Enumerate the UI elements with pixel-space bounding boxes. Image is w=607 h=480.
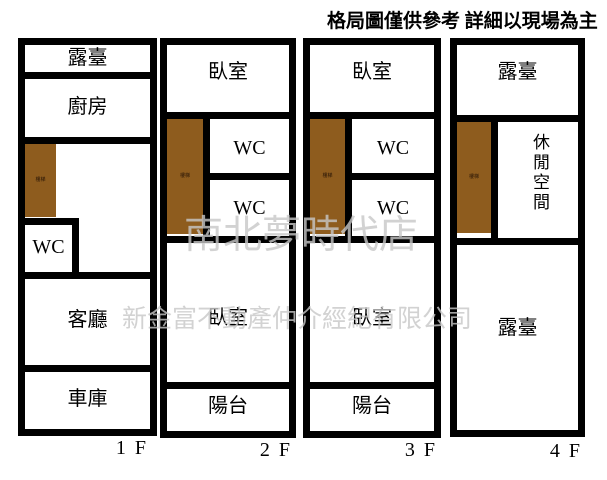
room-label-bedroom-upper: 臥室	[310, 61, 434, 83]
room-label-living: 客廳	[25, 309, 150, 331]
wall	[25, 218, 79, 225]
floor-panel-1f: 露臺 廚房 樓梯 WC 客廳 車庫	[18, 38, 157, 436]
room-label-bedroom-lower: 臥室	[167, 307, 289, 329]
room-label-balcony: 陽台	[310, 395, 434, 417]
room-label-terrace-lower: 露臺	[457, 317, 578, 339]
room-label-garage: 車庫	[25, 388, 150, 410]
wall	[310, 236, 434, 243]
wall	[25, 137, 150, 144]
room-label-kitchen: 廚房	[25, 96, 150, 118]
wall	[72, 218, 79, 278]
stairs-label: 樓梯	[469, 175, 479, 180]
stairs-block: 樓梯	[457, 122, 491, 233]
room-label-balcony: 陽台	[167, 395, 289, 417]
wall	[310, 112, 434, 119]
wall	[25, 365, 150, 372]
room-label-terrace-upper: 露臺	[457, 61, 578, 83]
room-label-wc-lower: WC	[352, 197, 434, 219]
stairs-block: 樓梯	[25, 144, 56, 217]
room-label-leisure: 休閒空間	[527, 133, 552, 213]
floor-panel-2f: 臥室 樓梯 WC WC 臥室 陽台	[160, 38, 296, 438]
wall	[352, 173, 434, 180]
stairs-block: 樓梯	[310, 119, 345, 234]
wall	[167, 236, 289, 243]
wall	[457, 115, 578, 122]
floor-panel-4f: 露臺 樓梯 休閒空間 露臺	[450, 38, 585, 437]
room-label-wc: WC	[25, 236, 72, 258]
floor-label-2f: 2 F	[242, 439, 292, 462]
floor-label-1f: 1 F	[98, 437, 148, 460]
room-label-wc-upper: WC	[210, 137, 289, 159]
room-label-wc-upper: WC	[352, 137, 434, 159]
room-label-wc-lower: WC	[210, 197, 289, 219]
floorplan-canvas: 格局圖僅供參考 詳細以現場為主 露臺 廚房 樓梯 WC 客廳 車庫 臥室 樓梯 …	[0, 0, 607, 480]
wall	[167, 382, 289, 389]
wall	[25, 72, 150, 79]
disclaimer-text: 格局圖僅供參考 詳細以現場為主	[327, 6, 598, 33]
wall	[210, 173, 289, 180]
wall	[203, 119, 210, 243]
floor-label-4f: 4 F	[532, 440, 582, 463]
floor-panel-3f: 臥室 樓梯 WC WC 臥室 陽台	[303, 38, 441, 438]
wall	[25, 272, 150, 279]
room-label-bedroom-lower: 臥室	[310, 307, 434, 329]
wall	[457, 238, 578, 245]
room-label-bedroom-upper: 臥室	[167, 61, 289, 83]
stairs-label: 樓梯	[322, 174, 332, 179]
room-label-terrace: 露臺	[25, 47, 150, 69]
wall	[345, 119, 352, 243]
wall	[310, 382, 434, 389]
stairs-label: 樓梯	[180, 174, 190, 179]
floor-label-3f: 3 F	[387, 439, 437, 462]
stairs-label: 樓梯	[35, 178, 45, 183]
wall	[491, 122, 498, 245]
stairs-block: 樓梯	[167, 119, 203, 234]
wall	[167, 112, 289, 119]
